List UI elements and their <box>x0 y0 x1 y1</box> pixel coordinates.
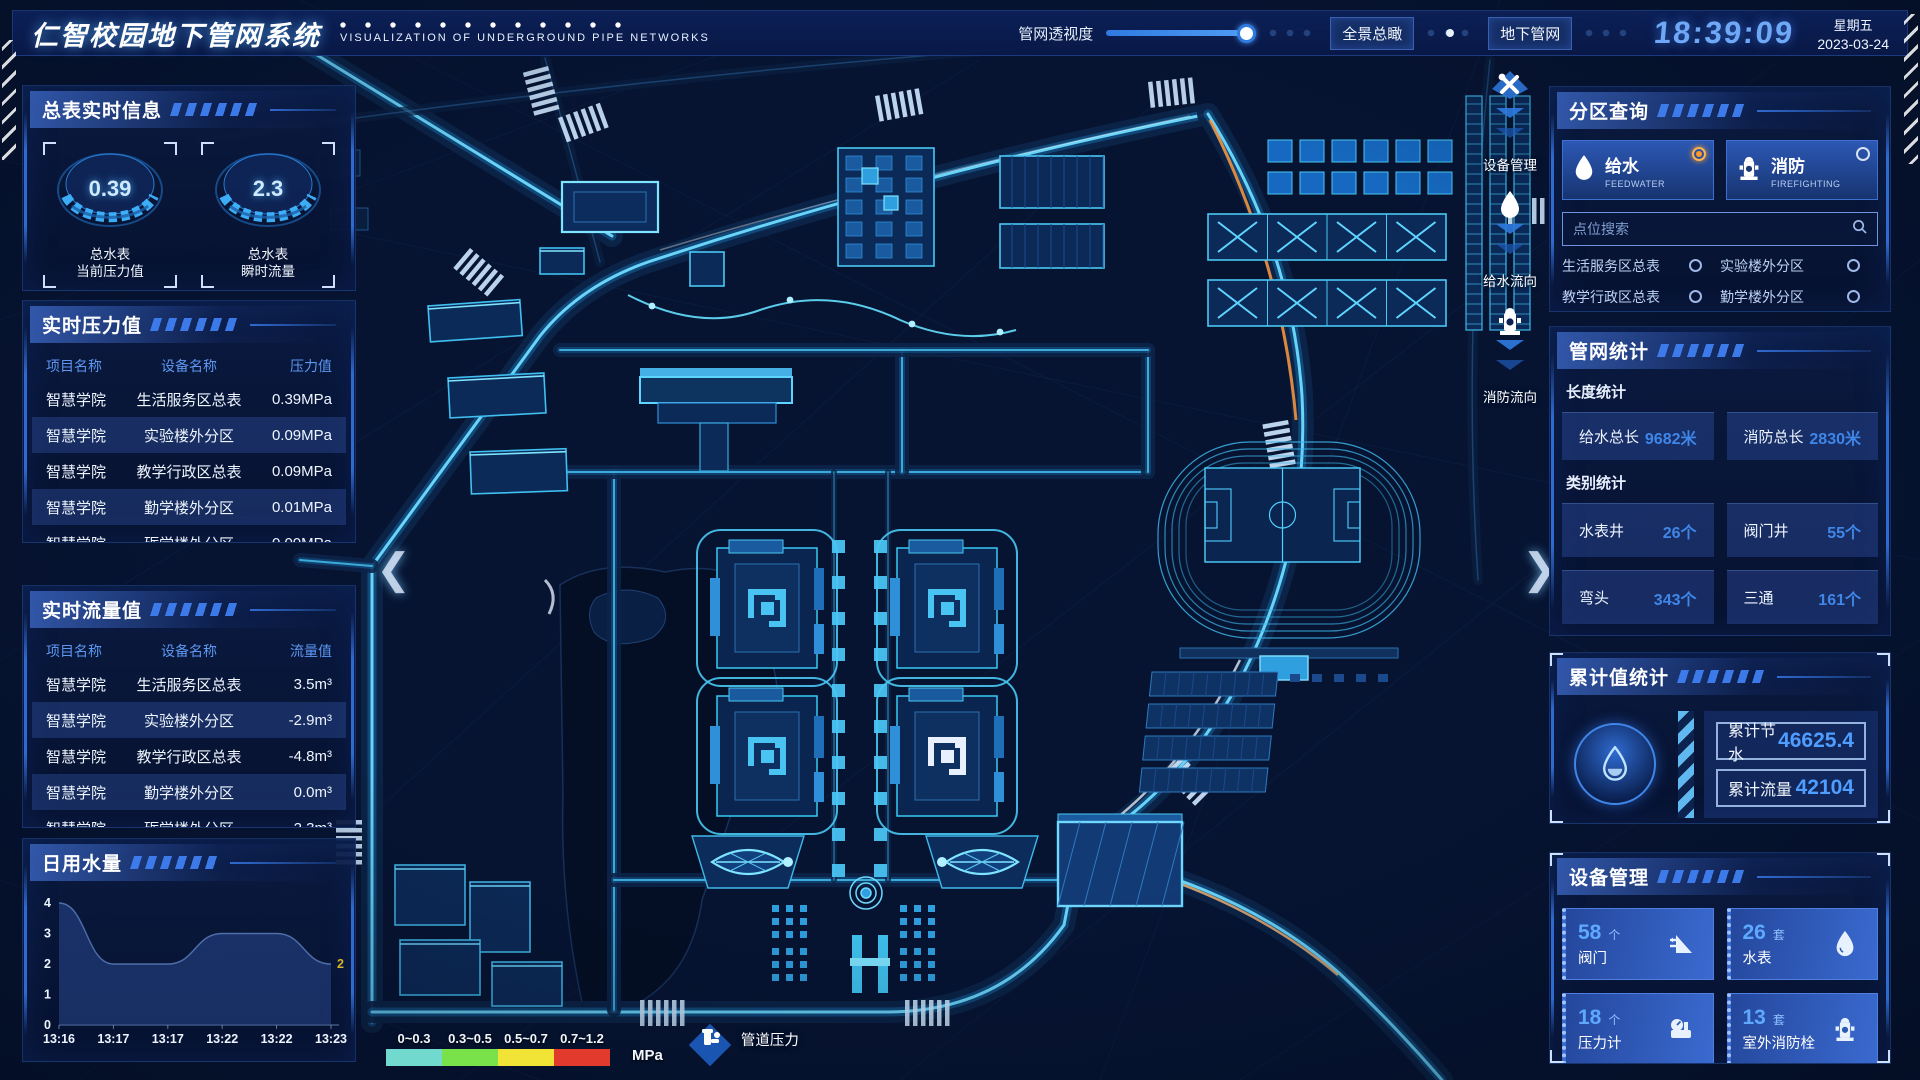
weekday: 星期五 <box>1834 15 1873 34</box>
category-stats-label: 类别统计 <box>1566 472 1874 493</box>
panel-daily-water: 日用水量 0123413:1613:1713:1713:2213:2213:23… <box>22 838 356 1062</box>
slashes-decoration <box>150 603 242 616</box>
table-row: 智慧学院实验楼外分区0.09MPa <box>32 417 346 453</box>
table-row: 智慧学院生活服务区总表0.39MPa <box>32 381 346 417</box>
svg-text:3: 3 <box>44 927 51 941</box>
date: 2023-03-24 <box>1817 36 1889 52</box>
stat-box: 阀门井55个 <box>1727 503 1879 557</box>
legend-pipe-pressure: 管道压力 <box>689 1022 799 1066</box>
map-prev-arrow-icon[interactable]: ❮ <box>376 548 411 590</box>
svg-text:4: 4 <box>44 896 51 910</box>
legend-range-4: 0.7~1.2 <box>554 1031 610 1066</box>
radio-unselected-icon[interactable] <box>1689 290 1702 303</box>
length-stats-label: 长度统计 <box>1566 381 1874 402</box>
legend-unit: MPa <box>632 1047 663 1064</box>
wrench-tools-icon <box>1487 66 1533 112</box>
svg-text:13:17: 13:17 <box>152 1032 184 1046</box>
slider-knob[interactable] <box>1237 24 1256 43</box>
section-header: 总表实时信息 <box>30 91 348 128</box>
device-card-hydrant[interactable]: 13套室外消防栓 <box>1727 993 1879 1064</box>
slashes-decoration <box>1677 670 1769 683</box>
date-block: 星期五 2023-03-24 <box>1817 15 1889 52</box>
panel-zone-query: 分区查询 给水FEEDWATER 消防FIREFIGHTING 生活服务区总表 … <box>1549 86 1891 312</box>
cumulative-water-icon <box>1562 711 1668 817</box>
firefighting-toggle-button[interactable]: 消防FIREFIGHTING <box>1726 140 1878 200</box>
edge-slashes-decoration <box>2 40 16 160</box>
svg-text:13:22: 13:22 <box>206 1032 238 1046</box>
map-floating-controls: 设备管理 给水流向 消防流向 <box>1462 66 1558 414</box>
panel-realtime-pressure: 实时压力值 项目名称设备名称压力值 智慧学院生活服务区总表0.39MPa 智慧学… <box>22 300 356 543</box>
radio-unselected-icon[interactable] <box>1847 259 1860 272</box>
pressure-meter-icon <box>689 1022 733 1066</box>
slashes-decoration <box>170 103 262 116</box>
legend-swatch <box>554 1049 610 1066</box>
pressure-legend: 0~0.3 0.3~0.5 0.5~0.7 0.7~1.2 MPa 管道压力 <box>386 1022 799 1066</box>
app-subtitle: VISUALIZATION OF UNDERGROUND PIPE NETWOR… <box>340 32 710 44</box>
panel-realtime-flow: 实时流量值 项目名称设备名称流量值 智慧学院生活服务区总表3.5m³ 智慧学院实… <box>22 585 356 828</box>
table-row: 智慧学院砺学楼外分区2.3m³ <box>32 810 346 828</box>
water-drop-icon <box>1573 154 1595 187</box>
svg-text:2: 2 <box>44 957 51 971</box>
device-card-pressure-gauge[interactable]: 18个压力计 <box>1562 993 1714 1064</box>
water-drop-icon <box>1487 182 1533 228</box>
stat-box: 三通161个 <box>1727 570 1879 624</box>
svg-text:13:16: 13:16 <box>43 1032 75 1046</box>
pressure-table: 项目名称设备名称压力值 智慧学院生活服务区总表0.39MPa 智慧学院实验楼外分… <box>32 351 346 543</box>
map-control-fire-flow[interactable]: 消防流向 <box>1483 298 1537 406</box>
table-row: 智慧学院砺学楼外分区0.00MPa <box>32 525 346 543</box>
table-row: 智慧学院教学行政区总表0.09MPa <box>32 453 346 489</box>
table-row: 智慧学院实验楼外分区-2.9m³ <box>32 702 346 738</box>
stat-box: 水表井26个 <box>1562 503 1714 557</box>
radio-unselected-icon[interactable] <box>1847 290 1860 303</box>
legend-range-1: 0~0.3 <box>386 1031 442 1066</box>
header-bar: 仁智校园地下管网系统 VISUALIZATION OF UNDERGROUND … <box>12 10 1908 56</box>
stat-box: 消防总长2830米 <box>1727 412 1879 460</box>
radio-selected-icon[interactable] <box>1692 147 1706 161</box>
map-control-device[interactable]: 设备管理 <box>1483 66 1537 174</box>
svg-text:13:23: 13:23 <box>315 1032 347 1046</box>
list-item[interactable]: 勤学楼外分区 <box>1720 281 1878 312</box>
table-row: 智慧学院勤学楼外分区0.01MPa <box>32 489 346 525</box>
legend-swatch <box>442 1049 498 1066</box>
map-control-feedwater-flow[interactable]: 给水流向 <box>1483 182 1537 290</box>
pressure-gauge-icon <box>1659 1007 1703 1051</box>
dots-decoration <box>1585 29 1633 37</box>
svg-text:13:17: 13:17 <box>97 1032 129 1046</box>
panel-meter-realtime: 总表实时信息 0.39 总水表当前压力值 2.3 总水表瞬时流量 <box>22 85 356 291</box>
point-search-box[interactable] <box>1562 212 1878 246</box>
dots-decoration <box>340 22 640 29</box>
search-input[interactable] <box>1573 221 1844 237</box>
list-item[interactable]: 生活服务区总表 <box>1562 250 1720 281</box>
table-row: 智慧学院勤学楼外分区0.0m³ <box>32 774 346 810</box>
dots-decoration <box>1427 29 1475 37</box>
gauge-pressure: 0.39 总水表当前压力值 <box>43 142 177 288</box>
radio-unselected-icon[interactable] <box>1856 147 1870 161</box>
legend-range-2: 0.3~0.5 <box>442 1031 498 1066</box>
app-title: 仁智校园地下管网系统 <box>31 14 321 53</box>
legend-swatch <box>498 1049 554 1066</box>
svg-text:2: 2 <box>337 957 344 971</box>
cumulative-flow-row: 累计流量42104 <box>1716 769 1866 807</box>
panel-device-mgmt: 设备管理 58个阀门 26套水表 18个压力计 13套室外消防栓 <box>1549 852 1891 1064</box>
legend-swatch <box>386 1049 442 1066</box>
table-header: 项目名称设备名称流量值 <box>32 636 346 666</box>
slider-track[interactable] <box>1106 30 1250 36</box>
table-row: 智慧学院教学行政区总表-4.8m³ <box>32 738 346 774</box>
stat-box: 给水总长9682米 <box>1562 412 1714 460</box>
slashes-decoration <box>150 318 242 331</box>
fire-hydrant-icon <box>1823 1007 1867 1051</box>
panel-pipe-stats: 管网统计 长度统计 给水总长9682米 消防总长2830米 类别统计 水表井26… <box>1549 326 1891 636</box>
svg-text:13:22: 13:22 <box>261 1032 293 1046</box>
chevron-down-icon <box>1496 128 1524 152</box>
pipe-opacity-label: 管网透视度 <box>1018 23 1093 44</box>
hazard-stripes-decoration <box>1678 711 1694 818</box>
underground-pipes-button[interactable]: 地下管网 <box>1488 17 1572 50</box>
radio-unselected-icon[interactable] <box>1689 259 1702 272</box>
device-card-water-meter[interactable]: 26套水表 <box>1727 908 1879 980</box>
slashes-decoration <box>1657 870 1749 883</box>
search-icon[interactable] <box>1852 219 1867 239</box>
list-item[interactable]: 教学行政区总表 <box>1562 281 1720 312</box>
legend-range-3: 0.5~0.7 <box>498 1031 554 1066</box>
water-drop-icon <box>1823 922 1867 966</box>
edge-slashes-decoration <box>1904 14 1918 164</box>
panorama-button[interactable]: 全景总瞰 <box>1330 17 1414 50</box>
header-sub: VISUALIZATION OF UNDERGROUND PIPE NETWOR… <box>340 22 710 44</box>
svg-text:0: 0 <box>44 1018 51 1032</box>
chevron-down-icon <box>1496 360 1524 384</box>
feedwater-toggle-button[interactable]: 给水FEEDWATER <box>1562 140 1714 200</box>
table-header: 项目名称设备名称压力值 <box>32 351 346 381</box>
cumulative-values: 累计节水46625.4 累计流量42104 <box>1704 711 1878 818</box>
device-card-valve[interactable]: 58个阀门 <box>1562 908 1714 980</box>
clock: 18:39:09 <box>1653 15 1796 51</box>
daily-water-chart: 0123413:1613:1713:1713:2213:2213:232 <box>29 887 349 1060</box>
svg-text:1: 1 <box>44 988 51 1002</box>
chevron-down-icon <box>1496 244 1524 268</box>
list-item[interactable]: 实验楼外分区 <box>1720 250 1878 281</box>
gauge-flow: 2.3 总水表瞬时流量 <box>201 142 335 288</box>
fire-hydrant-icon <box>1737 154 1761 187</box>
dots-decoration <box>1269 29 1317 37</box>
slashes-decoration <box>1657 104 1749 117</box>
pipe-opacity-slider[interactable] <box>1106 24 1256 42</box>
fire-hydrant-icon <box>1487 298 1533 344</box>
panel-cumulative: 累计值统计 累计节水46625.4 累计流量42104 <box>1549 652 1891 824</box>
valve-icon <box>1659 922 1703 966</box>
table-row: 智慧学院生活服务区总表3.5m³ <box>32 666 346 702</box>
cumulative-saved-row: 累计节水46625.4 <box>1716 722 1866 760</box>
zone-point-list: 生活服务区总表 实验楼外分区 教学行政区总表 勤学楼外分区 砺学楼外分区 宿舍区… <box>1562 250 1878 312</box>
stat-box: 弯头343个 <box>1562 570 1714 624</box>
slashes-decoration <box>1657 344 1749 357</box>
flow-table: 项目名称设备名称流量值 智慧学院生活服务区总表3.5m³ 智慧学院实验楼外分区-… <box>32 636 346 828</box>
slashes-decoration <box>130 856 222 869</box>
